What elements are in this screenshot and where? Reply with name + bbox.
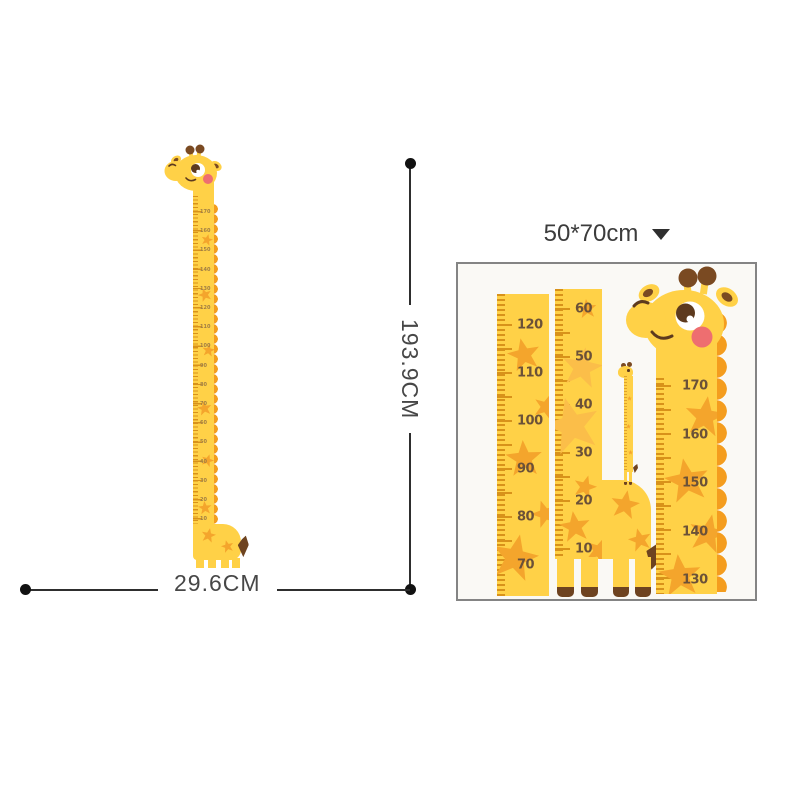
ruler-number: 90 <box>517 462 534 477</box>
caret-down-icon[interactable] <box>652 229 670 240</box>
height-dimension-label: 193.9CM <box>394 305 425 433</box>
ruler-number: 30 <box>200 478 207 484</box>
ruler-number: 140 <box>682 524 708 539</box>
ruler-number: 60 <box>575 302 592 317</box>
mini-giraffe <box>618 364 646 488</box>
ruler-number: 10 <box>200 516 207 522</box>
ruler-number: 130 <box>200 286 210 292</box>
ruler-number: 40 <box>200 459 207 465</box>
ruler-number: 20 <box>200 497 207 503</box>
giraffe-hoof <box>635 587 651 597</box>
ruler-number: 140 <box>200 267 210 273</box>
dimension-dot-bottom-left <box>20 584 31 595</box>
ruler-number: 30 <box>575 446 592 461</box>
giraffe-head-icon <box>624 266 740 372</box>
size-variant-label[interactable]: 50*70cm <box>544 220 639 248</box>
ruler-number: 20 <box>575 494 592 509</box>
mane-scallops <box>213 204 221 524</box>
ruler-number: 60 <box>200 420 207 426</box>
giraffe-hoof <box>557 587 574 597</box>
left-chart-ruler: 1701601501401301201101009080706050403020… <box>193 196 214 526</box>
ruler-number: 70 <box>517 558 534 573</box>
detail-ruler-left: 120110100908070 <box>497 294 549 596</box>
ruler-number: 100 <box>200 343 210 349</box>
giraffe-leg <box>635 557 651 589</box>
ruler-number: 160 <box>682 427 708 442</box>
ruler-number: 90 <box>200 363 207 369</box>
ruler-number: 130 <box>682 573 708 588</box>
giraffe-body <box>193 524 241 560</box>
giraffe-leg <box>557 557 574 589</box>
ruler-number: 110 <box>517 366 543 381</box>
giraffe-head-icon <box>164 144 224 200</box>
ruler-number: 80 <box>200 382 207 388</box>
dimension-dot-top <box>405 158 416 169</box>
ruler-number: 160 <box>200 228 210 234</box>
ruler-number: 150 <box>200 247 210 253</box>
giraffe-body <box>602 480 651 559</box>
detail-ruler-right: 170160150140130 <box>656 354 717 594</box>
giraffe-leg <box>581 557 598 589</box>
ruler-number: 80 <box>517 510 534 525</box>
ruler-number: 40 <box>575 398 592 413</box>
ruler-number: 50 <box>200 439 207 445</box>
ruler-number: 110 <box>200 324 210 330</box>
product-image: 1701601501401301201101009080706050403020… <box>0 0 800 800</box>
ruler-number: 100 <box>517 414 543 429</box>
ruler-number: 120 <box>200 305 210 311</box>
detail-ruler-middle: 605040302010 <box>555 289 602 559</box>
left-growth-chart: 1701601501401301201101009080706050403020… <box>0 0 450 800</box>
giraffe-hoof <box>613 587 629 597</box>
detail-card: 120110100908070 605040302010 <box>456 262 757 601</box>
ruler-number: 150 <box>682 476 708 491</box>
ruler-number: 10 <box>575 542 592 557</box>
ruler-number: 120 <box>517 318 543 333</box>
size-variant-selector[interactable]: 50*70cm <box>456 220 758 248</box>
giraffe-hoof <box>581 587 598 597</box>
ruler-number: 170 <box>200 209 210 215</box>
giraffe-leg <box>613 557 629 589</box>
ruler-number: 50 <box>575 350 592 365</box>
width-dimension-label: 29.6CM <box>158 568 277 599</box>
ruler-number: 70 <box>200 401 207 407</box>
ruler-number: 170 <box>682 379 708 394</box>
